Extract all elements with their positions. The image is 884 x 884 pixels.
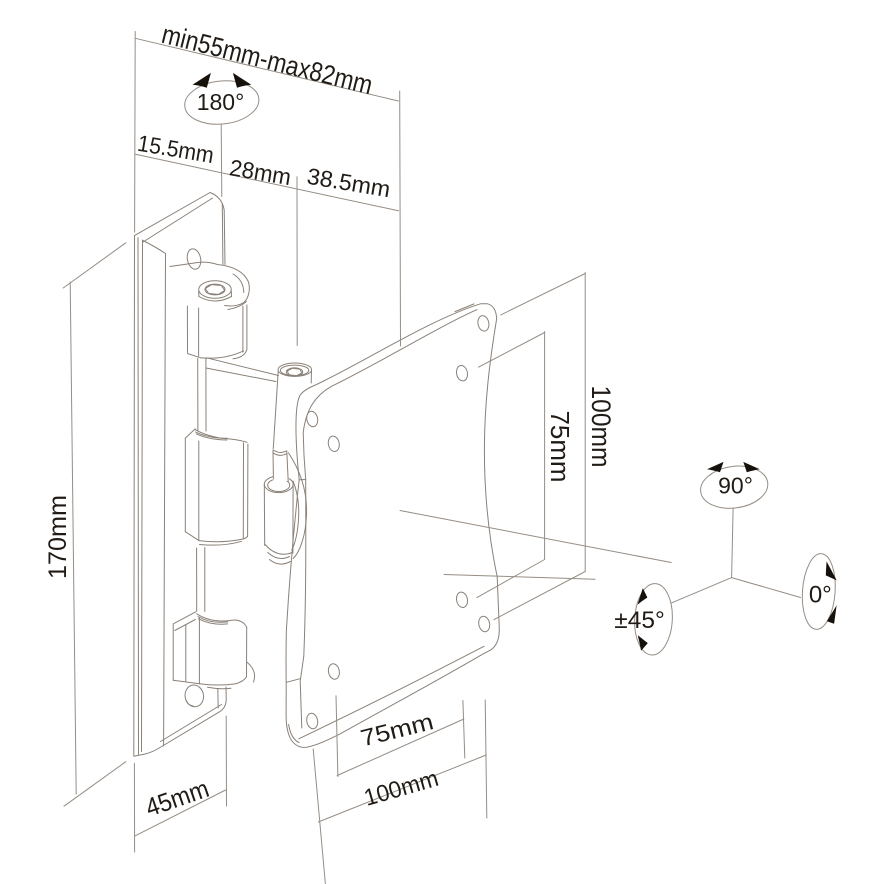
svg-text:15.5mm: 15.5mm [136, 130, 216, 168]
svg-text:75mm: 75mm [545, 411, 573, 483]
svg-text:0°: 0° [809, 582, 832, 609]
svg-text:±45°: ±45° [614, 607, 665, 634]
svg-text:28mm: 28mm [228, 154, 293, 190]
svg-text:45mm: 45mm [142, 775, 213, 823]
svg-text:38.5mm: 38.5mm [305, 163, 392, 203]
svg-text:90°: 90° [718, 473, 753, 499]
svg-text:100mm: 100mm [361, 765, 441, 811]
svg-text:100mm: 100mm [586, 386, 616, 468]
svg-text:min55mm-max82mm: min55mm-max82mm [159, 19, 376, 100]
svg-text:180°: 180° [197, 89, 245, 115]
svg-text:170mm: 170mm [44, 495, 72, 579]
